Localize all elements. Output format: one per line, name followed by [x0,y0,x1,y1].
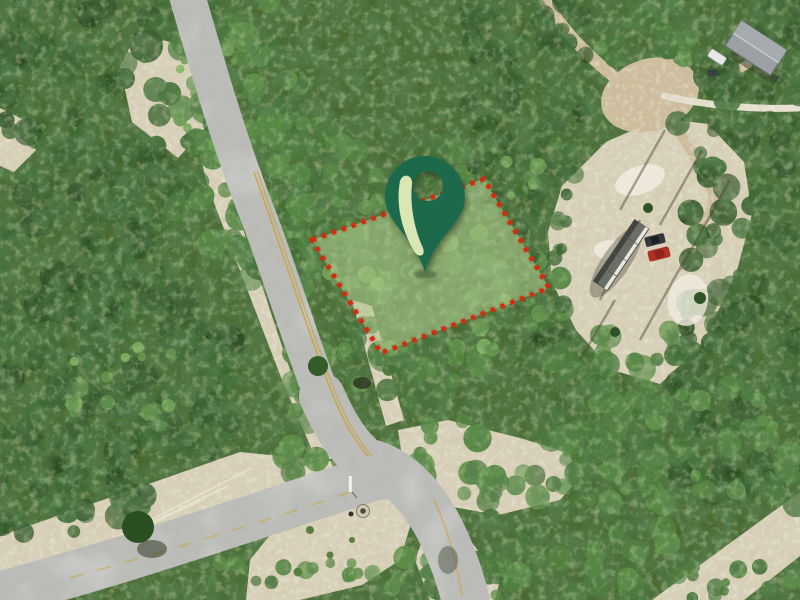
tree-canopy [717,376,741,400]
tree-canopy [732,218,753,239]
tree-canopy [412,386,436,410]
tree-canopy [56,472,68,484]
tree-canopy [325,165,339,179]
tree-canopy [705,223,721,239]
tree-canopy [761,472,777,488]
tree-canopy [569,494,584,509]
tree-canopy [657,38,679,60]
tree-shadow-se-road [438,546,458,574]
tree-canopy [100,427,115,442]
tree-canopy [0,31,33,65]
tree-canopy [14,523,34,543]
tree-canopy [774,369,798,393]
tree-canopy [650,353,663,366]
tree-canopy [560,34,578,52]
tree-canopy [477,490,500,513]
tree-canopy [188,191,208,211]
tree-canopy [307,138,326,157]
tree-canopy [623,517,644,538]
tree-canopy [446,373,461,388]
tree-canopy [481,509,500,528]
tree-canopy [576,64,589,77]
tree-canopy [556,365,571,380]
tree-canopy [172,188,185,201]
tree-canopy [166,286,199,319]
tree-canopy [328,144,340,156]
tree-canopy [589,428,612,451]
tree-canopy [643,402,655,414]
tree-canopy [530,158,547,175]
tree-canopy [121,353,130,362]
tree-canopy [180,135,194,149]
tree-canopy [748,183,779,214]
tree-canopy [304,257,318,271]
tree-canopy [752,559,768,575]
tree-canopy [119,297,147,325]
tree-canopy [258,46,273,61]
tree-canopy [42,436,55,449]
tree-canopy [369,168,384,183]
tree-canopy [688,452,705,469]
tree-canopy [531,551,546,566]
tree-canopy [555,245,564,254]
tree-canopy [72,380,89,397]
tree-canopy [31,480,49,498]
tree-canopy [47,142,78,173]
tree-canopy [546,476,562,492]
tree-canopy [707,124,720,137]
tree-canopy [138,353,146,361]
tree-canopy [109,237,133,261]
tree-canopy [232,49,249,66]
tree-canopy [16,104,29,117]
tree-canopy [158,319,177,338]
tree-canopy [208,576,219,587]
tree-canopy [605,51,621,67]
tree-canopy [773,452,799,478]
tree-canopy [96,192,127,223]
tree-canopy [402,362,427,387]
tree-canopy [710,457,735,482]
tree-canopy [764,19,779,34]
tree-canopy [464,39,484,59]
tree-canopy [722,578,730,586]
tree-canopy [755,85,774,104]
tree-canopy [134,131,149,146]
tree-canopy [686,223,709,246]
tree-canopy [44,297,71,324]
tree-canopy [287,163,311,187]
tree-canopy [460,94,478,112]
aerial-photo [0,0,800,600]
tree-canopy [277,72,292,87]
tree-canopy [72,498,95,521]
tree-canopy [590,325,611,346]
screenshot-root [0,0,800,600]
tree-canopy [672,454,683,465]
tree-canopy [184,333,201,350]
tree-canopy [65,395,82,412]
tree-canopy [703,413,715,425]
tree-canopy [693,62,721,90]
tree-canopy [620,482,633,495]
tree-canopy [393,546,417,570]
tree-canopy [137,49,151,63]
tree-canopy [737,114,756,133]
tree-canopy [457,486,471,500]
tree-canopy [67,441,87,461]
tree-canopy [774,156,796,178]
tree-canopy [484,465,507,488]
tree-canopy [161,399,175,413]
tree-canopy [106,469,131,494]
tree-canopy [632,408,642,418]
tree-canopy [625,353,644,372]
tree-canopy [347,558,357,568]
tree-canopy [717,432,742,457]
tree-canopy [783,572,800,590]
tree-canopy [448,350,465,367]
tree-canopy [66,107,85,126]
tree-canopy [101,371,113,383]
tree-canopy [133,342,144,353]
tree-canopy [127,217,139,229]
tree-canopy [2,450,29,477]
tree-canopy [654,489,670,505]
tree-canopy [140,404,157,421]
tree-canopy [678,410,692,424]
tree-canopy [238,564,248,574]
tree-canopy [740,419,758,437]
tree-canopy [784,393,797,406]
tree-canopy [525,485,550,510]
tree-canopy [364,565,381,582]
tree-canopy [719,70,748,99]
junction-pad [354,448,406,500]
tree-canopy [523,172,533,182]
tree-canopy [30,34,57,61]
tree-canopy [39,495,57,513]
tree-canopy [114,325,130,341]
tree-canopy [609,33,625,49]
tree-canopy [70,357,79,366]
tree-canopy [526,297,535,306]
tree-canopy [623,18,634,29]
tree-canopy [541,97,564,120]
tree-canopy [593,41,607,55]
tree-canopy [761,581,775,595]
tree-canopy [710,199,737,226]
tree-canopy [481,551,508,578]
tree-canopy [677,29,697,49]
tree-canopy [506,475,526,495]
tree-canopy [697,165,720,188]
tree-canopy [173,112,187,126]
tree-canopy [208,366,238,396]
canopy-shadow-on-road [137,540,167,558]
tree-canopy [31,321,65,355]
tree-canopy [530,205,544,219]
tree-canopy [692,484,705,497]
tree-canopy [512,540,530,558]
tree-canopy [156,420,167,431]
tree-canopy [600,459,622,481]
tree-canopy [690,470,702,482]
tree-canopy [471,319,489,337]
tree-canopy [501,156,513,168]
tree-canopy [263,116,285,138]
tree-canopy [265,155,289,179]
tree-canopy [718,417,729,428]
tree-canopy [100,73,123,96]
lone-pine [643,203,653,213]
tree-canopy [583,558,604,579]
tree-canopy [665,111,690,136]
tree-canopy [279,435,305,461]
tree-canopy [505,577,521,593]
tree-canopy [227,37,236,46]
tree-canopy [58,0,72,14]
tree-canopy [376,379,398,401]
tree-canopy [727,481,746,500]
tree-canopy [676,51,692,67]
tree-canopy [463,424,491,452]
tree-canopy [594,352,620,378]
tree-canopy [528,333,546,351]
tree-canopy [143,77,168,102]
tree-canopy [721,276,741,296]
tree-canopy [598,490,622,514]
tree-canopy [664,344,686,366]
street-sign [349,476,352,492]
tree-canopy [687,569,699,581]
tree-canopy [187,171,209,193]
tree-canopy [549,404,567,422]
tree-canopy [614,402,627,415]
tree-canopy [760,111,779,130]
tree-canopy [14,118,42,146]
tree-canopy [748,275,769,296]
tree-canopy [343,573,353,583]
tree-canopy [176,65,185,74]
tree-canopy [338,342,351,355]
tree-canopy [719,586,729,596]
tree-canopy [244,73,265,94]
lone-pine [694,292,706,304]
tree-canopy [8,12,26,30]
tree-canopy [226,558,235,567]
tree-canopy [559,143,574,158]
tree-canopy [68,468,91,491]
tree-canopy [473,115,499,141]
tree-canopy [531,305,548,322]
tree-canopy [495,44,512,61]
tree-canopy [560,215,572,227]
tree-canopy [148,104,171,127]
tree-canopy [77,434,85,442]
tree-canopy [486,343,499,356]
tree-canopy [654,394,674,414]
tree-canopy [674,424,696,446]
culvert-drain-hole [360,508,366,514]
tree-canopy [767,224,781,238]
tree-canopy [652,18,673,39]
tree-canopy [775,33,787,45]
tree-canopy [114,446,130,462]
tree-canopy [677,390,688,401]
tree-canopy [528,188,545,205]
tree-canopy [345,139,369,163]
tree-canopy [166,348,176,358]
tree-canopy [275,559,291,575]
tree-canopy [664,330,680,346]
tree-canopy [424,431,438,445]
tree-canopy [530,219,539,228]
tree-canopy [554,295,572,313]
tree-canopy [154,266,166,278]
tree-canopy [77,144,99,166]
roadside-bush [353,377,371,389]
overhanging-tree [122,511,154,543]
tree-canopy [644,468,667,491]
tree-canopy [507,191,515,199]
tree-canopy [610,422,627,439]
tree-canopy [573,6,593,26]
tree-canopy [721,301,751,331]
tree-canopy [13,181,40,208]
tree-canopy [729,560,747,578]
tree-canopy [689,390,710,411]
pole-base [349,512,354,517]
tree-canopy [664,568,677,581]
tree-canopy [491,590,502,600]
tree-canopy [773,307,792,326]
tree-canopy [724,340,754,370]
lone-pine [610,327,620,337]
tree-canopy [561,189,573,201]
tree-canopy [68,183,87,202]
tree-canopy [390,571,406,587]
tree-canopy [104,269,126,291]
dark-vehicle-at-house [708,70,717,76]
tree-canopy [230,22,260,52]
tree-canopy [546,116,565,135]
tree-canopy [531,10,555,34]
tree-canopy [83,42,97,56]
tree-canopy [213,430,229,446]
tree-canopy [352,568,364,580]
tree-canopy [554,341,576,363]
tree-canopy [467,159,482,174]
tree-canopy [68,525,81,538]
tree-canopy [572,104,590,122]
tree-canopy [753,438,767,452]
tree-canopy [16,418,37,439]
tree-canopy [80,335,109,364]
tree-canopy [678,200,704,226]
tree-canopy [265,576,279,590]
tree-canopy [42,453,61,472]
tree-canopy [545,74,558,87]
tree-canopy [325,558,335,568]
tree-canopy [1,426,17,442]
tree-canopy [536,37,551,52]
overhanging-tree [308,356,328,376]
tree-canopy [204,444,220,460]
tree-canopy [547,546,572,571]
tree-canopy [649,516,676,543]
tree-canopy [133,144,165,176]
tree-canopy [569,85,587,103]
tree-canopy [636,435,654,453]
tree-canopy [631,579,643,591]
tree-canopy [295,116,310,131]
tree-canopy [323,189,335,201]
tree-canopy [482,82,493,93]
tree-canopy [276,87,303,114]
tree-canopy [213,557,227,571]
tree-canopy [767,485,788,506]
tree-canopy [358,200,373,215]
tree-canopy [596,383,613,400]
tree-canopy [100,395,115,410]
tree-canopy [757,415,768,426]
tree-canopy [217,229,232,244]
tree-canopy [304,447,329,472]
tree-canopy [637,19,649,31]
tree-canopy [584,494,596,506]
tree-canopy [251,576,262,587]
tree-canopy [62,199,78,215]
tree-canopy [497,88,521,112]
tree-canopy [33,209,53,229]
tree-canopy [475,7,493,25]
tree-canopy [741,389,754,402]
tree-canopy [747,449,773,475]
tree-canopy [47,56,75,84]
tree-canopy [456,414,470,428]
tree-canopy [621,539,642,560]
tree-canopy [577,47,593,63]
tree-canopy [521,528,532,539]
